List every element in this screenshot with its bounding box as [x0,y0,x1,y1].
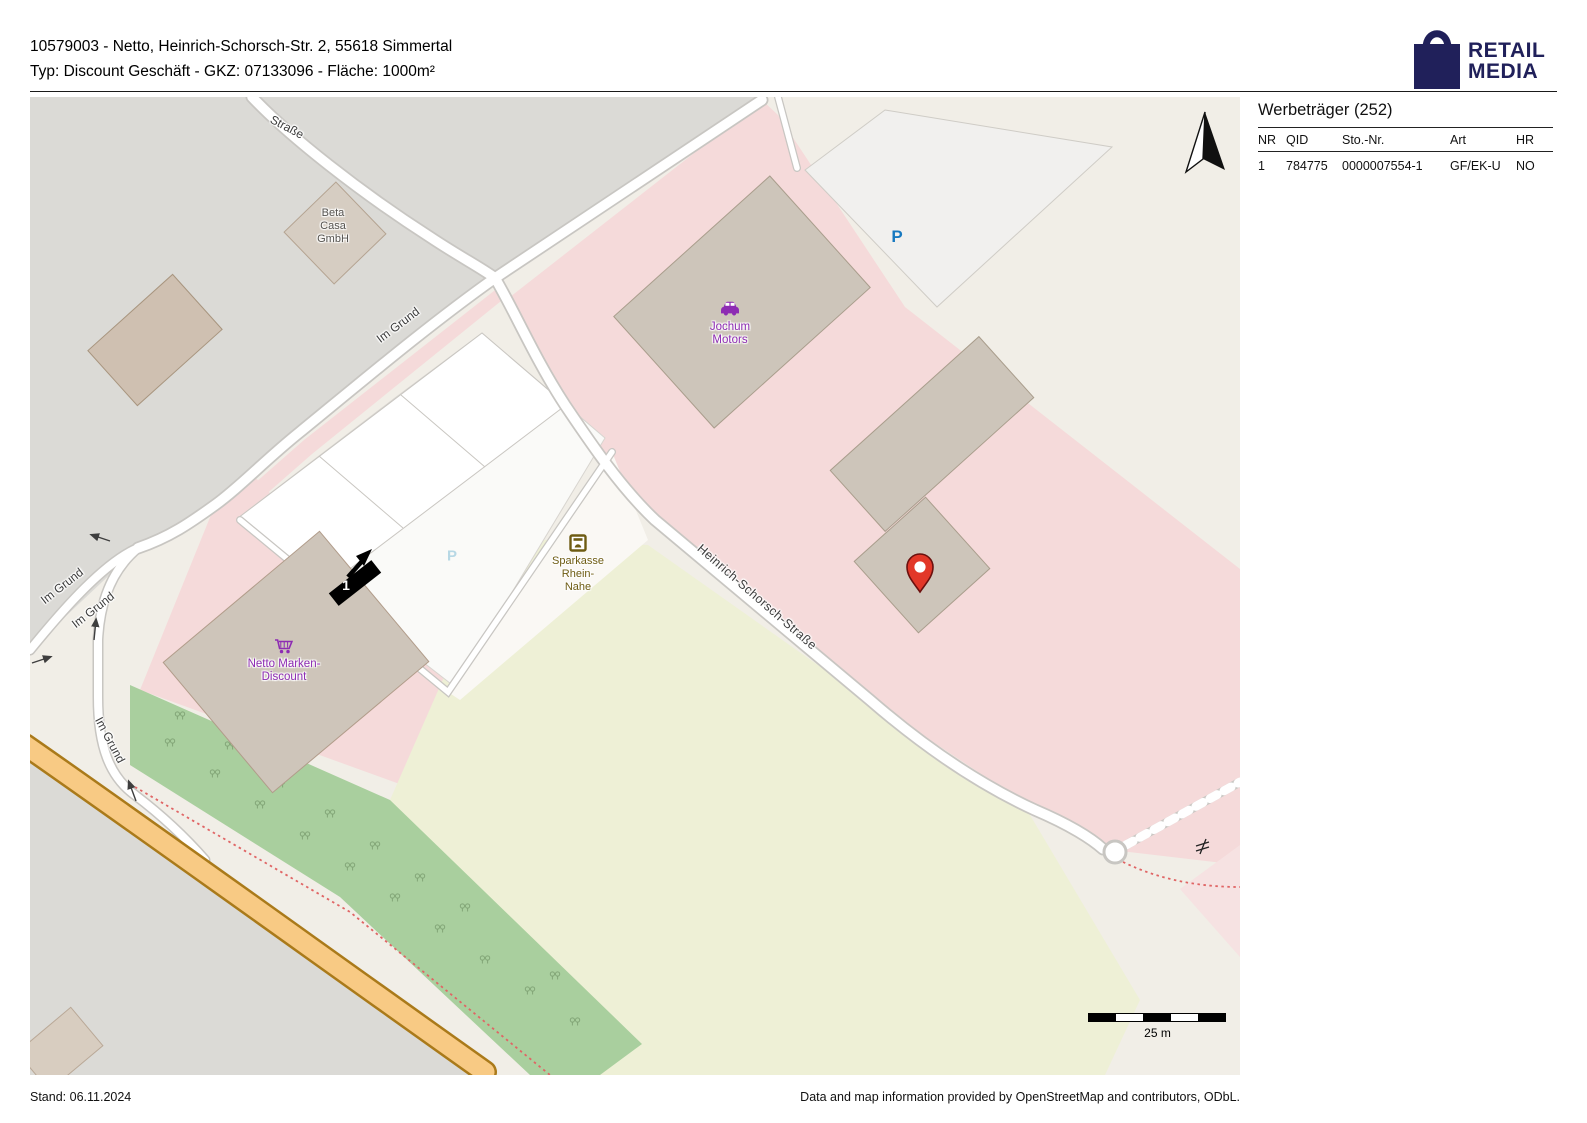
bank-icon [571,536,586,551]
scale-bar [1088,1013,1226,1022]
header-divider [30,91,1557,92]
cell-sto-nr: 0000007554-1 [1342,152,1450,176]
column-header-hr: HR [1516,128,1553,152]
parking-symbol: P [447,548,457,565]
poi-label-beta-casa: Beta Casa GmbH [317,207,349,246]
retail-media-logo: RETAIL MEDIA [1411,16,1545,97]
panel-title: Werbeträger (252) [1258,101,1553,127]
roundabout [1104,841,1126,863]
parking-symbol: P [891,227,902,247]
column-header-nr: NR [1258,128,1286,152]
poi-label-netto: Netto Marken- Discount [248,658,321,684]
report-header: 10579003 - Netto, Heinrich-Schorsch-Str.… [30,34,452,84]
shopping-bag-icon [1411,16,1463,97]
cell-art: GF/EK-U [1450,152,1516,176]
report-title: 10579003 - Netto, Heinrich-Schorsch-Str.… [30,34,452,59]
table-row[interactable]: 1 784775 0000007554-1 GF/EK-U NO [1258,152,1553,176]
werbetraeger-panel: Werbeträger (252) NR QID Sto.-Nr. Art HR… [1258,101,1553,175]
report-subtitle: Typ: Discount Geschäft - GKZ: 07133096 -… [30,59,452,84]
column-header-qid: QID [1286,128,1342,152]
cell-qid: 784775 [1286,152,1342,176]
scale-label: 25 m [1088,1026,1227,1040]
cell-nr: 1 [1258,152,1286,176]
billboard-marker-number: 1 [342,577,350,593]
column-header-sto-nr: Sto.-Nr. [1342,128,1450,152]
werbetraeger-table: NR QID Sto.-Nr. Art HR 1 784775 00000075… [1258,128,1553,175]
cell-hr: NO [1516,152,1553,176]
table-header-row: NR QID Sto.-Nr. Art HR [1258,128,1553,152]
poi-label-sparkasse: Sparkasse Rhein- Nahe [552,555,604,594]
footer-attribution: Data and map information provided by Ope… [800,1090,1240,1104]
poi-label-jochum-motors: Jochum Motors [710,321,750,347]
column-header-art: Art [1450,128,1516,152]
map-canvas[interactable]: 1 Straße Im Grund [30,97,1240,1075]
footer-date: Stand: 06.11.2024 [30,1090,131,1104]
logo-text: RETAIL MEDIA [1468,40,1545,82]
